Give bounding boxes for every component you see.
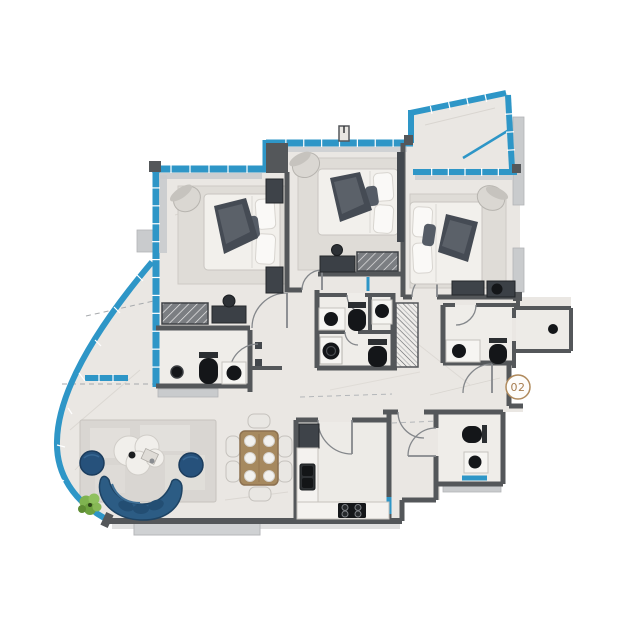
dining-chair bbox=[249, 487, 271, 501]
toilet-tank bbox=[368, 339, 387, 345]
window-sill bbox=[159, 173, 262, 179]
ac-ledge bbox=[513, 117, 524, 205]
kitchen-sink-basin bbox=[302, 478, 313, 488]
toilet-tank bbox=[482, 425, 487, 443]
coffee-table-decor bbox=[150, 459, 155, 464]
wall-column bbox=[149, 161, 161, 172]
bed-pillow bbox=[255, 233, 276, 264]
bedroom2-headboard-panel bbox=[397, 152, 404, 242]
dining-chair bbox=[226, 436, 240, 457]
linen-closet-hatched bbox=[396, 303, 418, 367]
stove-burner bbox=[342, 505, 348, 511]
door-frame bbox=[255, 342, 262, 349]
bedroom1-nightstand bbox=[266, 179, 283, 203]
bath-1-sink bbox=[227, 366, 242, 381]
bedroom2-dresser bbox=[320, 256, 355, 272]
curve-mullion bbox=[70, 499, 76, 507]
stove-burner bbox=[355, 511, 361, 517]
store-room-fixture bbox=[548, 324, 558, 334]
ac-ledge bbox=[137, 230, 155, 252]
sofa-cushion bbox=[133, 504, 149, 514]
bath-1-toilet-tank bbox=[199, 352, 218, 358]
toilet-tank bbox=[348, 302, 366, 308]
toilet-bowl bbox=[462, 426, 482, 443]
plant-center bbox=[88, 503, 92, 507]
dining-plate bbox=[264, 436, 275, 447]
dining-chair bbox=[226, 461, 240, 482]
bath-b-cabinet-sink bbox=[492, 284, 503, 295]
powder-sink bbox=[375, 304, 389, 318]
dining-plate bbox=[264, 471, 275, 482]
stove-burner bbox=[355, 505, 361, 511]
bath-1-toilet-bowl bbox=[199, 358, 218, 384]
bedroom1-stool bbox=[223, 295, 235, 307]
plant-leaf bbox=[93, 503, 102, 512]
bedroom2-stool bbox=[332, 245, 343, 256]
dining-chair bbox=[278, 461, 292, 482]
bath-a-sink bbox=[324, 312, 338, 326]
window-sill bbox=[159, 175, 167, 253]
entry-planter-ledge bbox=[134, 523, 260, 535]
bedroom3-dresser bbox=[452, 281, 484, 295]
coffee-table-decor bbox=[129, 452, 136, 459]
bedroom2-wardrobe-hatched bbox=[357, 252, 398, 271]
dining-plate bbox=[245, 436, 256, 447]
toilet-bowl bbox=[368, 346, 387, 367]
dining-chair bbox=[248, 414, 270, 428]
toilet-tank bbox=[489, 338, 507, 343]
kitchen-sink-basin bbox=[302, 466, 313, 476]
toilet-bowl bbox=[348, 309, 366, 331]
plan-layers: 02 bbox=[56, 92, 571, 535]
toilet-bowl bbox=[489, 344, 507, 364]
bed-pillow bbox=[373, 204, 394, 233]
bath-c-sink bbox=[469, 456, 482, 469]
fridge bbox=[299, 424, 319, 448]
stove-burner bbox=[342, 511, 348, 517]
bed-pillow bbox=[412, 242, 433, 273]
wall-column bbox=[266, 143, 288, 173]
floor-plan-drawing: 02 bbox=[0, 0, 620, 620]
dining-plate bbox=[245, 471, 256, 482]
bath-1-pedestal-sink bbox=[171, 366, 183, 378]
store-room-floor bbox=[516, 309, 569, 349]
ac-ledge bbox=[158, 389, 218, 397]
washing-machine-drum bbox=[323, 343, 340, 360]
bedroom1-nightstand bbox=[266, 267, 283, 293]
unit-number-label: 02 bbox=[511, 381, 526, 394]
bedroom1-wardrobe-hatched bbox=[162, 303, 208, 324]
dining-plate bbox=[245, 453, 256, 464]
plant-leaf bbox=[78, 505, 86, 513]
floor-plan-page: 02 bbox=[0, 0, 620, 620]
bath-b-sink bbox=[452, 344, 466, 358]
door-frame bbox=[255, 359, 262, 366]
dining-plate bbox=[264, 453, 275, 464]
window-sill-ledge bbox=[443, 486, 501, 492]
wall-column bbox=[512, 164, 521, 173]
dining-chair bbox=[278, 436, 292, 457]
bedroom1-dresser bbox=[212, 306, 246, 323]
window-sill bbox=[270, 147, 407, 152]
